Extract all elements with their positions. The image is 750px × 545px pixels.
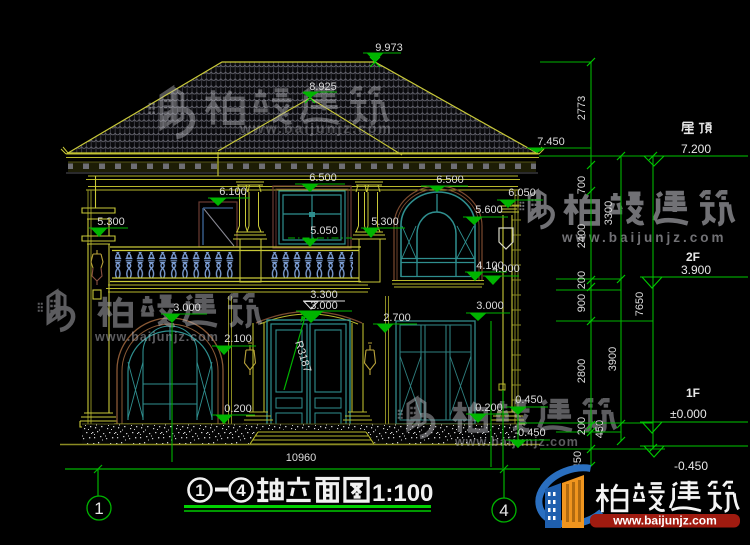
svg-text:3.900: 3.900 <box>681 263 711 277</box>
svg-text:1F: 1F <box>686 386 700 400</box>
svg-text:8.925: 8.925 <box>309 81 337 93</box>
svg-text:4: 4 <box>236 481 246 500</box>
svg-text:1: 1 <box>94 499 103 518</box>
svg-text:2773: 2773 <box>576 96 588 120</box>
svg-text:www.baijunjz.com: www.baijunjz.com <box>94 330 219 344</box>
svg-text:5.300: 5.300 <box>371 216 399 228</box>
svg-text:2800: 2800 <box>576 359 588 383</box>
svg-text:9.973: 9.973 <box>375 42 403 54</box>
svg-text:3.000: 3.000 <box>476 300 504 312</box>
svg-text:2.100: 2.100 <box>224 333 252 345</box>
svg-text:3.000: 3.000 <box>173 302 201 314</box>
svg-text:1:100: 1:100 <box>372 480 433 507</box>
svg-text:450: 450 <box>594 420 606 438</box>
svg-text:www.baijunjz.com: www.baijunjz.com <box>239 120 393 136</box>
svg-text:6.500: 6.500 <box>436 174 464 186</box>
svg-text:0.200: 0.200 <box>224 403 252 415</box>
svg-text:10960: 10960 <box>286 452 317 464</box>
svg-text:www.baijunjz.com: www.baijunjz.com <box>612 514 717 528</box>
svg-text:0.450: 0.450 <box>515 394 543 406</box>
svg-text:0.200: 0.200 <box>475 402 503 414</box>
svg-text:3300: 3300 <box>603 201 615 225</box>
svg-text:4.000: 4.000 <box>492 263 520 275</box>
svg-text:2400: 2400 <box>576 224 588 248</box>
svg-text:200: 200 <box>576 417 588 435</box>
svg-text:5.050: 5.050 <box>310 225 338 237</box>
svg-text:7.200: 7.200 <box>681 142 711 156</box>
svg-text:900: 900 <box>576 294 588 312</box>
svg-text:700: 700 <box>576 176 588 194</box>
svg-text:4: 4 <box>499 501 508 520</box>
svg-text:200: 200 <box>576 271 588 289</box>
svg-text:3900: 3900 <box>607 347 619 371</box>
svg-text:1: 1 <box>195 481 204 500</box>
svg-text:2.700: 2.700 <box>383 312 411 324</box>
svg-text:7.450: 7.450 <box>537 136 565 148</box>
svg-text:-0.450: -0.450 <box>674 459 708 473</box>
svg-text:2F: 2F <box>686 250 700 264</box>
svg-text:6.050: 6.050 <box>508 187 536 199</box>
svg-text:7650: 7650 <box>634 292 646 316</box>
svg-text:5.600: 5.600 <box>475 204 503 216</box>
svg-text:6.500: 6.500 <box>309 172 337 184</box>
svg-text:6.100: 6.100 <box>219 186 247 198</box>
svg-text:±0.000: ±0.000 <box>670 407 707 421</box>
svg-text:5.300: 5.300 <box>97 216 125 228</box>
svg-text:-0.450: -0.450 <box>514 427 545 439</box>
svg-text:3.000: 3.000 <box>310 300 338 312</box>
